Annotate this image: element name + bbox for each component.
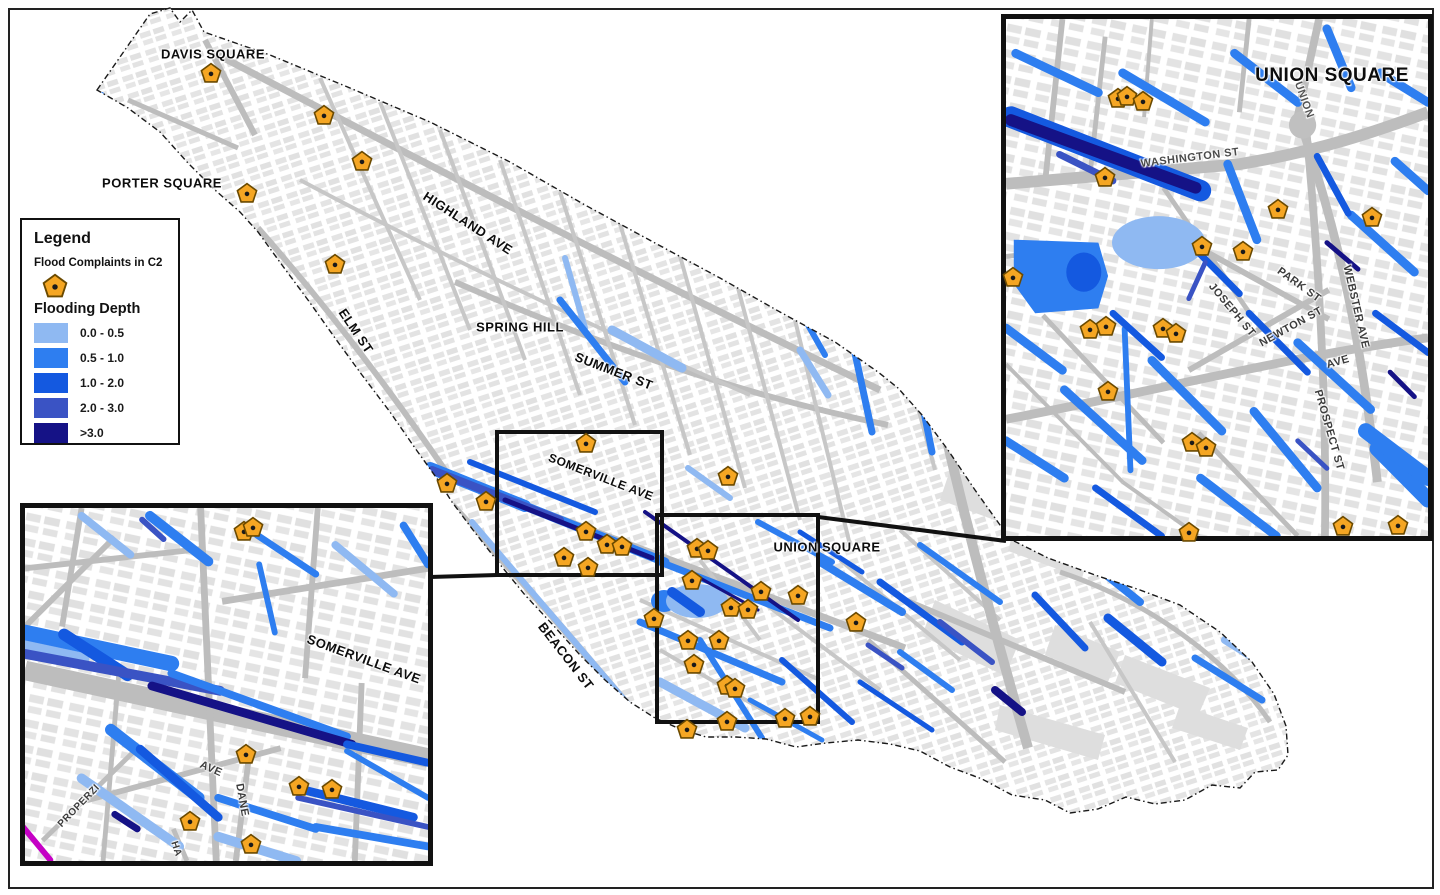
flood-complaint-marker[interactable] (575, 432, 597, 454)
flood-complaint-marker[interactable] (179, 810, 201, 832)
legend-swatch (34, 373, 68, 393)
flood-complaint-marker[interactable] (1095, 315, 1117, 337)
flood-complaint-marker[interactable] (236, 182, 258, 204)
flood-complaint-marker-icon (42, 273, 68, 299)
legend-class-row: 0.5 - 1.0 (34, 348, 168, 368)
flood-map-page: Legend Flood Complaints in C2 Flooding D… (0, 0, 1440, 895)
flood-complaint-marker[interactable] (1191, 235, 1213, 257)
flood-complaint-marker[interactable] (1097, 380, 1119, 402)
flood-complaint-marker[interactable] (611, 535, 633, 557)
legend-class-label: 0.5 - 1.0 (80, 351, 124, 365)
flood-complaint-marker[interactable] (643, 607, 665, 629)
legend-class-label: 1.0 - 2.0 (80, 376, 124, 390)
flood-complaint-marker[interactable] (1132, 90, 1154, 112)
flood-complaint-marker[interactable] (475, 490, 497, 512)
flood-complaint-marker[interactable] (774, 707, 796, 729)
flood-complaint-marker[interactable] (1165, 322, 1187, 344)
flood-complaint-marker[interactable] (321, 778, 343, 800)
flood-complaint-marker[interactable] (1195, 436, 1217, 458)
flood-complaint-marker[interactable] (240, 833, 262, 855)
flood-complaint-marker[interactable] (351, 150, 373, 172)
legend: Legend Flood Complaints in C2 Flooding D… (20, 218, 180, 445)
flood-complaint-marker[interactable] (1332, 515, 1354, 537)
flood-complaint-marker[interactable] (235, 743, 257, 765)
leader-line-bottom-left (430, 575, 497, 577)
flood-complaint-marker[interactable] (242, 516, 264, 538)
flood-complaint-marker[interactable] (1361, 206, 1383, 228)
legend-depth-title: Flooding Depth (34, 301, 168, 317)
flood-complaint-marker[interactable] (324, 253, 346, 275)
flood-complaint-marker[interactable] (1267, 198, 1289, 220)
legend-class-row: 0.0 - 0.5 (34, 323, 168, 343)
legend-class-label: >3.0 (80, 426, 104, 440)
flood-complaint-marker[interactable] (717, 465, 739, 487)
flood-complaint-marker[interactable] (1094, 166, 1116, 188)
inset-map-somerville-ave[interactable] (20, 503, 433, 866)
legend-class-row: >3.0 (34, 423, 168, 443)
flood-complaint-marker[interactable] (708, 629, 730, 651)
flood-complaint-marker[interactable] (697, 539, 719, 561)
legend-class-row: 1.0 - 2.0 (34, 373, 168, 393)
legend-swatch (34, 423, 68, 443)
legend-class-label: 2.0 - 3.0 (80, 401, 124, 415)
flood-complaint-marker[interactable] (724, 677, 746, 699)
legend-swatch (34, 323, 68, 343)
flood-complaint-marker[interactable] (575, 520, 597, 542)
flood-complaint-marker[interactable] (681, 569, 703, 591)
flood-complaint-marker[interactable] (200, 62, 222, 84)
flood-complaint-marker[interactable] (1387, 514, 1409, 536)
flood-complaint-marker[interactable] (683, 653, 705, 675)
flood-complaint-marker[interactable] (676, 718, 698, 740)
legend-title: Legend (34, 230, 168, 248)
flood-complaint-marker[interactable] (313, 104, 335, 126)
legend-class-row: 2.0 - 3.0 (34, 398, 168, 418)
flood-complaint-marker[interactable] (799, 705, 821, 727)
flood-complaint-marker[interactable] (436, 472, 458, 494)
legend-depth-classes: 0.0 - 0.50.5 - 1.01.0 - 2.02.0 - 3.0>3.0 (34, 323, 168, 443)
flood-complaint-marker[interactable] (737, 598, 759, 620)
flood-complaint-marker[interactable] (716, 710, 738, 732)
legend-swatch (34, 348, 68, 368)
flood-complaint-marker[interactable] (787, 584, 809, 606)
flood-complaint-marker[interactable] (677, 629, 699, 651)
flood-complaint-marker[interactable] (1232, 240, 1254, 262)
inset-map-union-square[interactable] (1001, 14, 1433, 541)
flood-complaint-marker[interactable] (577, 556, 599, 578)
flood-complaint-marker[interactable] (1178, 521, 1200, 543)
flood-complaint-marker[interactable] (553, 546, 575, 568)
legend-swatch (34, 398, 68, 418)
flood-complaint-marker[interactable] (845, 611, 867, 633)
flood-complaint-marker[interactable] (288, 775, 310, 797)
flood-complaint-marker[interactable] (1002, 266, 1024, 288)
legend-complaints-label: Flood Complaints in C2 (34, 257, 168, 269)
legend-class-label: 0.0 - 0.5 (80, 326, 124, 340)
